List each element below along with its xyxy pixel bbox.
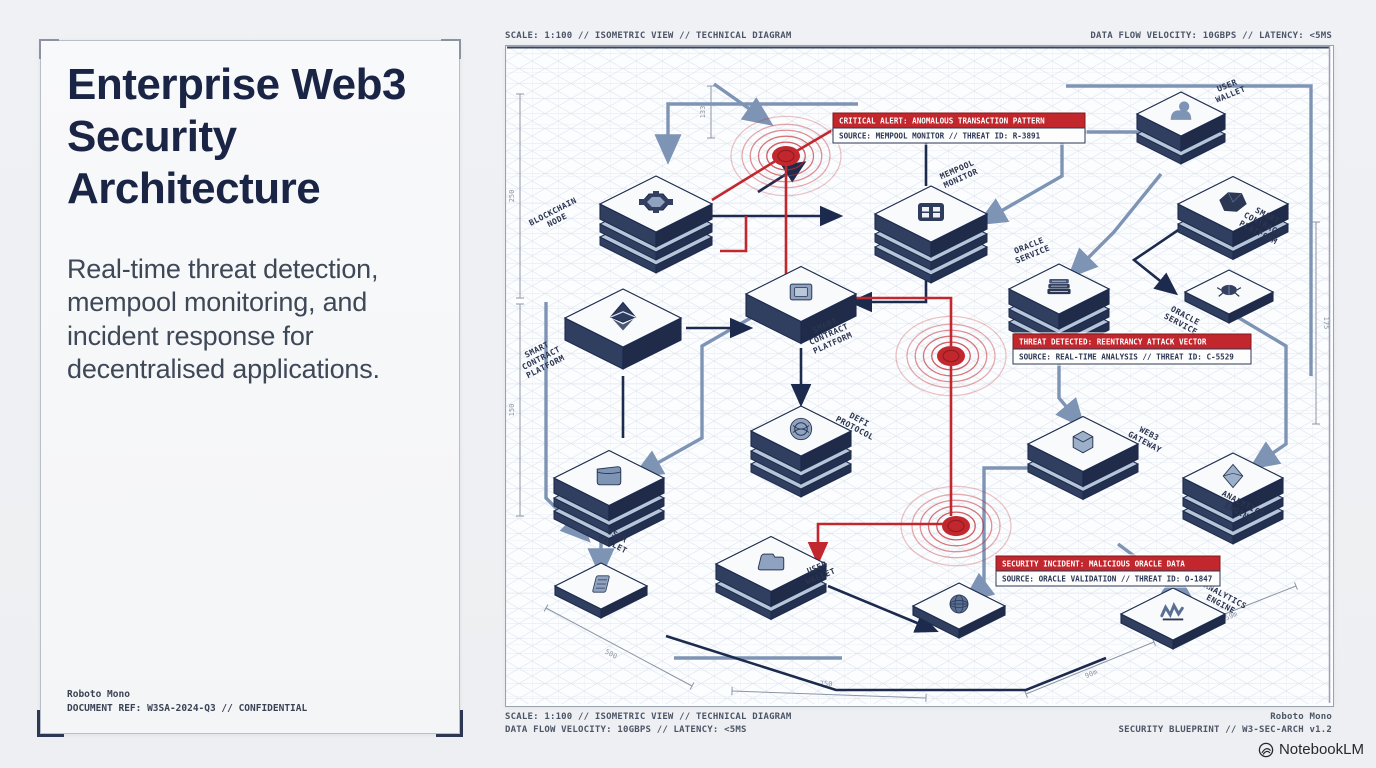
page: { "left_panel": { "title": "Enterprise W… [0,0,1376,768]
alert-source: SOURCE: ORACLE VALIDATION // THREAT ID: … [1002,575,1212,584]
dimension-label: 250 [508,190,516,203]
globe-icon [950,595,968,613]
title-panel: Enterprise Web3 Security Architecture Re… [40,40,460,734]
caption-scale-top: SCALE: 1:100 // ISOMETRIC VIEW // TECHNI… [505,31,792,41]
alert-title: SECURITY INCIDENT: MALICIOUS ORACLE DATA [1002,560,1185,569]
alert-callout: THREAT DETECTED: REENTRANCY ATTACK VECTO… [1011,332,1253,366]
alert-callout: CRITICAL ALERT: ANOMALOUS TRANSACTION PA… [831,111,1087,145]
corner-mark [436,710,463,737]
cube-icon [1073,431,1093,453]
blueprint-diagram: 250 150 133 175 500 750 90m [505,45,1334,707]
document-ref-id: DOCUMENT REF: W3SA-2024-Q3 // CONFIDENTI… [67,702,307,717]
document-ref: Roboto Mono DOCUMENT REF: W3SA-2024-Q3 /… [67,688,307,717]
notebooklm-icon [1258,742,1274,758]
notebooklm-brand: NotebookLM [1258,741,1364,758]
caption-scale-bottom: SCALE: 1:100 // ISOMETRIC VIEW // TECHNI… [505,711,792,724]
corner-mark [39,39,59,59]
isometric-diagram-svg: 250 150 133 175 500 750 90m [506,46,1331,704]
caption-bottom-right: Roboto Mono SECURITY BLUEPRINT // W3-SEC… [1118,711,1332,737]
docs-icon [1047,279,1070,294]
page-title: Enterprise Web3 Security Architecture [67,59,449,215]
caption-bottom-left: SCALE: 1:100 // ISOMETRIC VIEW // TECHNI… [505,711,792,737]
dimension-label: 175 [1322,317,1330,330]
wallet-icon [597,467,621,485]
alert-title: THREAT DETECTED: REENTRANCY ATTACK VECTO… [1019,338,1207,347]
emblem-icon [790,418,811,439]
corner-mark [37,710,64,737]
corner-mark [441,39,461,59]
caption-font-name: Roboto Mono [1118,711,1332,724]
alert-source: SOURCE: REAL-TIME ANALYSIS // THREAT ID:… [1019,353,1234,362]
page-subtitle: Real-time threat detection, mempool moni… [67,253,419,387]
chip-icon [790,284,812,300]
dimension-label: 133 [699,106,707,119]
notebooklm-label: NotebookLM [1279,741,1364,758]
grid-icon [918,203,944,221]
alert-title: CRITICAL ALERT: ANOMALOUS TRANSACTION PA… [839,117,1045,126]
document-ref-font: Roboto Mono [67,688,307,703]
caption-blueprint-version: SECURITY BLUEPRINT // W3-SEC-ARCH v1.2 [1118,724,1332,737]
caption-velocity-bottom: DATA FLOW VELOCITY: 10GBPS // LATENCY: <… [505,724,792,737]
alert-callout: SECURITY INCIDENT: MALICIOUS ORACLE DATA… [994,554,1222,588]
caption-velocity-top: DATA FLOW VELOCITY: 10GBPS // LATENCY: <… [1090,31,1332,41]
alert-source: SOURCE: MEMPOOL MONITOR // THREAT ID: R-… [839,132,1041,141]
dimension-label: 150 [508,404,516,417]
